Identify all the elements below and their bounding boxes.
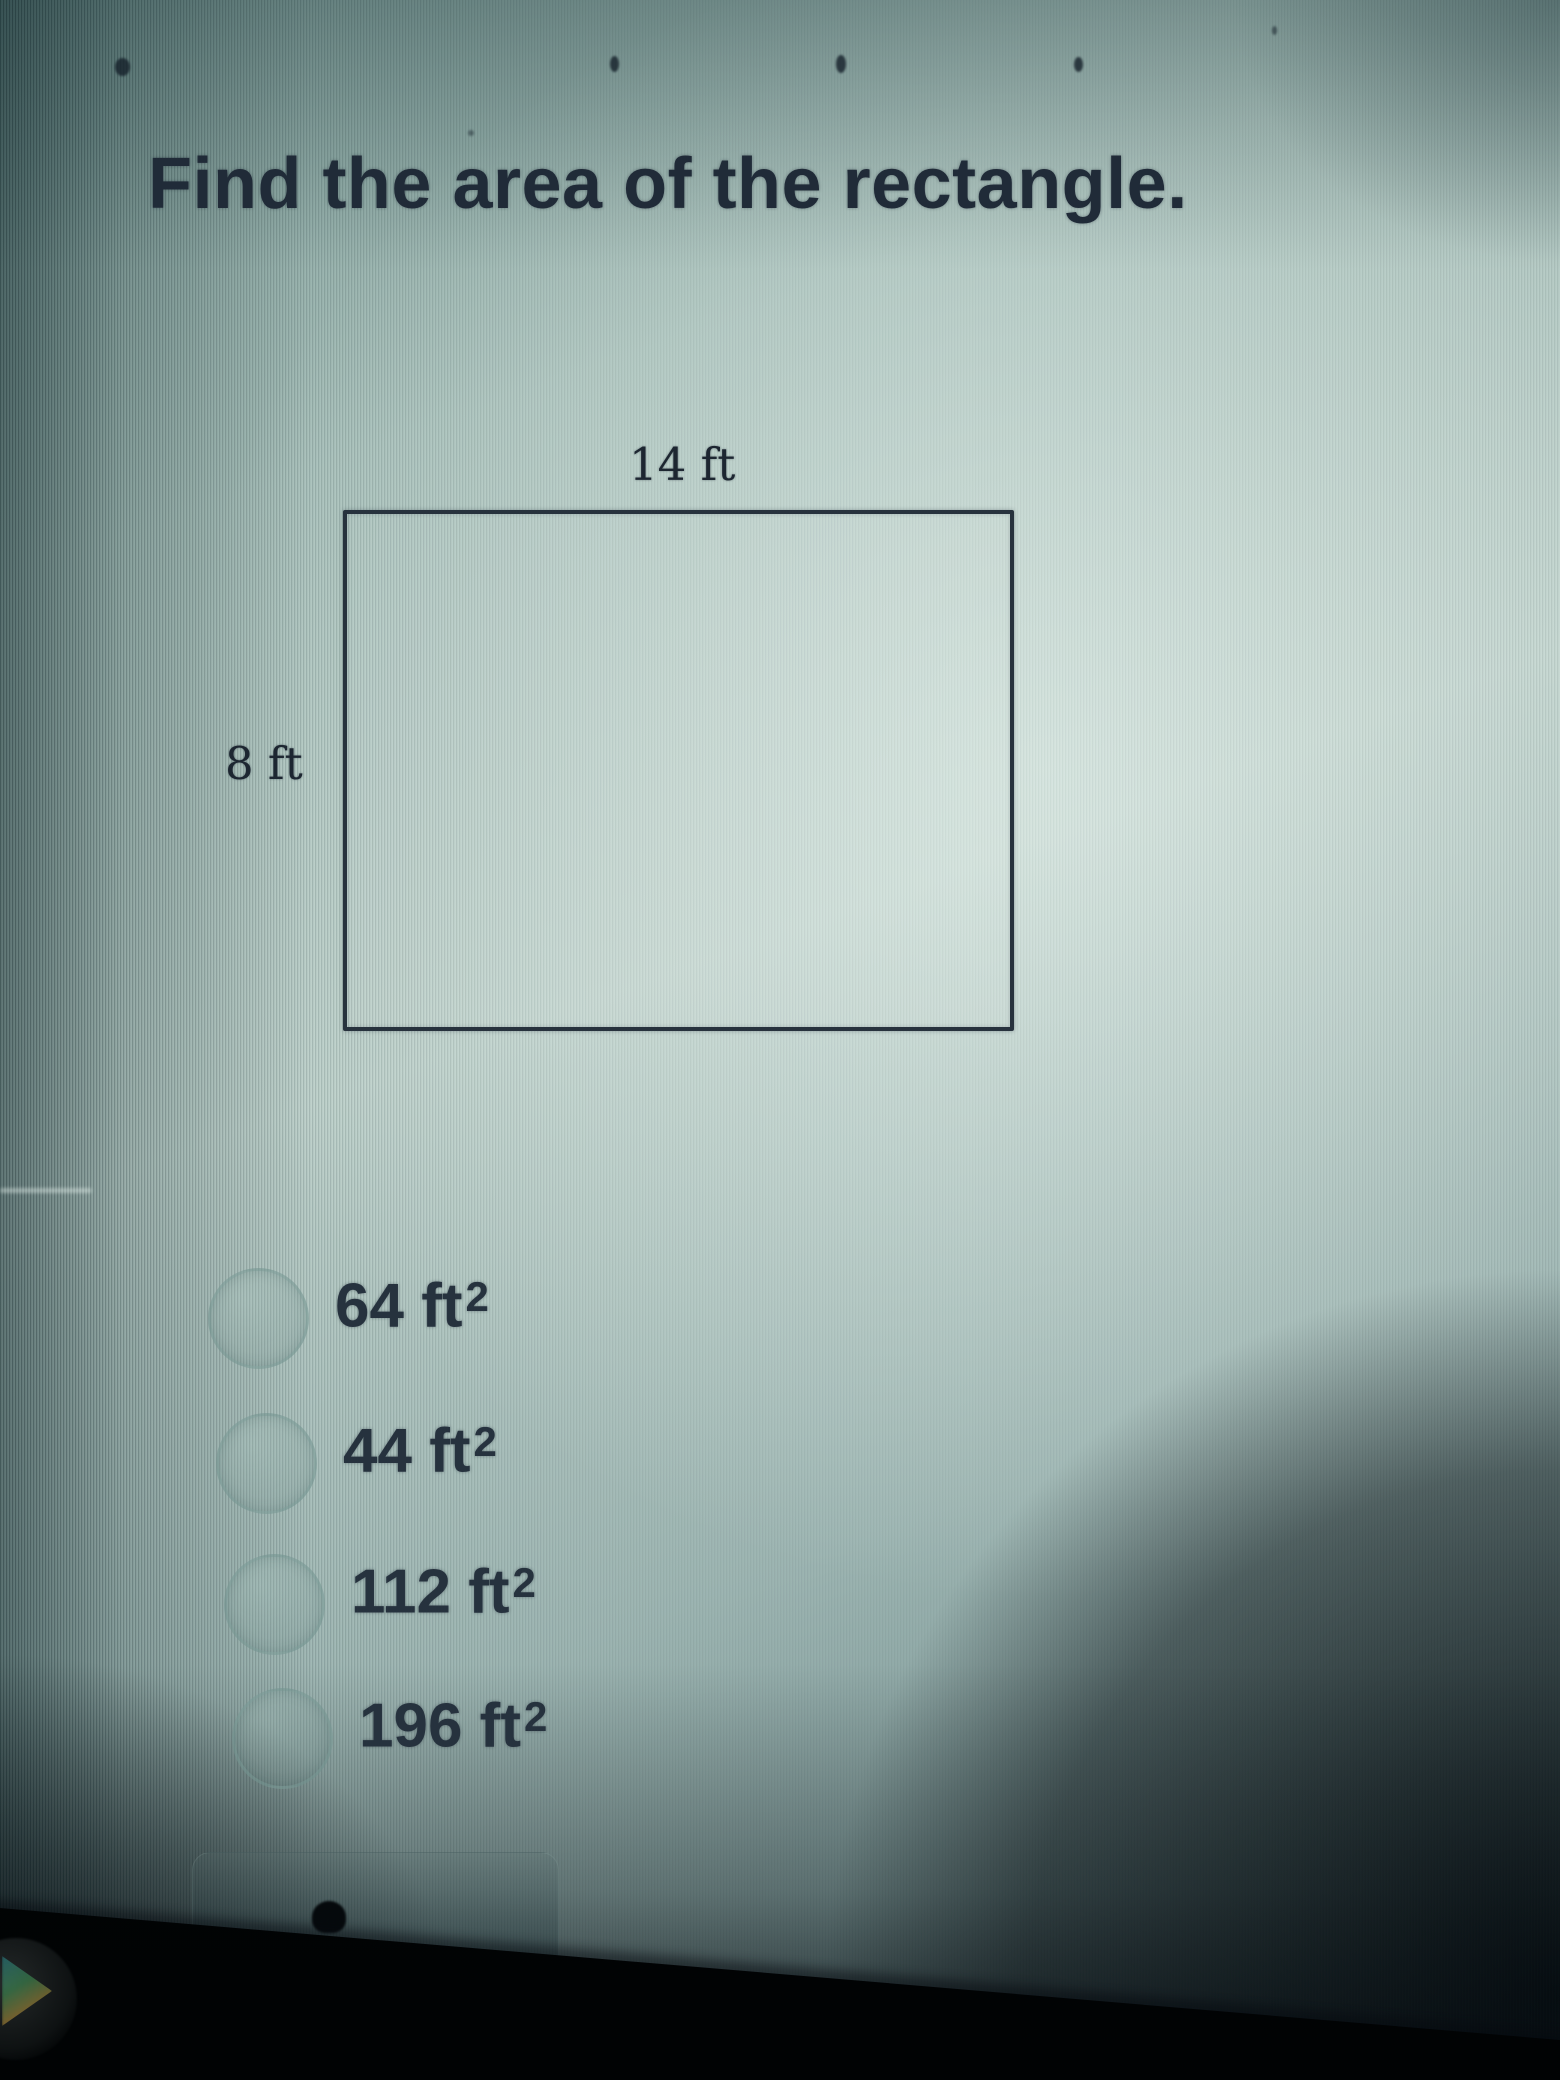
option-label: 64 ft2 (335, 1267, 489, 1342)
screen-speck (1074, 57, 1083, 72)
screen-speck (836, 55, 846, 73)
answer-option-2[interactable]: 44 ft2 (216, 1415, 497, 1511)
radio-button[interactable] (216, 1413, 317, 1514)
screen-speck (1272, 26, 1277, 35)
answer-option-3[interactable]: 112 ft2 (224, 1556, 536, 1652)
option-label: 44 ft2 (343, 1412, 497, 1487)
screen-speck (468, 130, 474, 136)
radio-button[interactable] (224, 1554, 325, 1655)
option-exponent: 2 (465, 1273, 488, 1320)
option-label: 112 ft2 (351, 1553, 536, 1628)
option-exponent: 2 (524, 1693, 547, 1740)
answer-option-1[interactable]: 64 ft2 (208, 1270, 489, 1366)
option-exponent: 2 (513, 1559, 536, 1606)
screen-speck (610, 56, 619, 72)
rectangle-diagram (343, 510, 1014, 1031)
height-dimension-label: 8 ft (225, 737, 303, 790)
width-dimension-label: 14 ft (629, 438, 735, 491)
screen-speck (115, 58, 130, 76)
screen-scratch (0, 1188, 92, 1193)
option-exponent: 2 (473, 1418, 496, 1465)
option-label: 196 ft2 (359, 1687, 547, 1762)
radio-button[interactable] (232, 1688, 333, 1789)
quiz-screen-photo: Find the area of the rectangle. 14 ft 8 … (0, 0, 1560, 2080)
question-title: Find the area of the rectangle. (148, 145, 1188, 224)
radio-button[interactable] (208, 1268, 309, 1369)
answer-option-4[interactable]: 196 ft2 (232, 1690, 547, 1786)
